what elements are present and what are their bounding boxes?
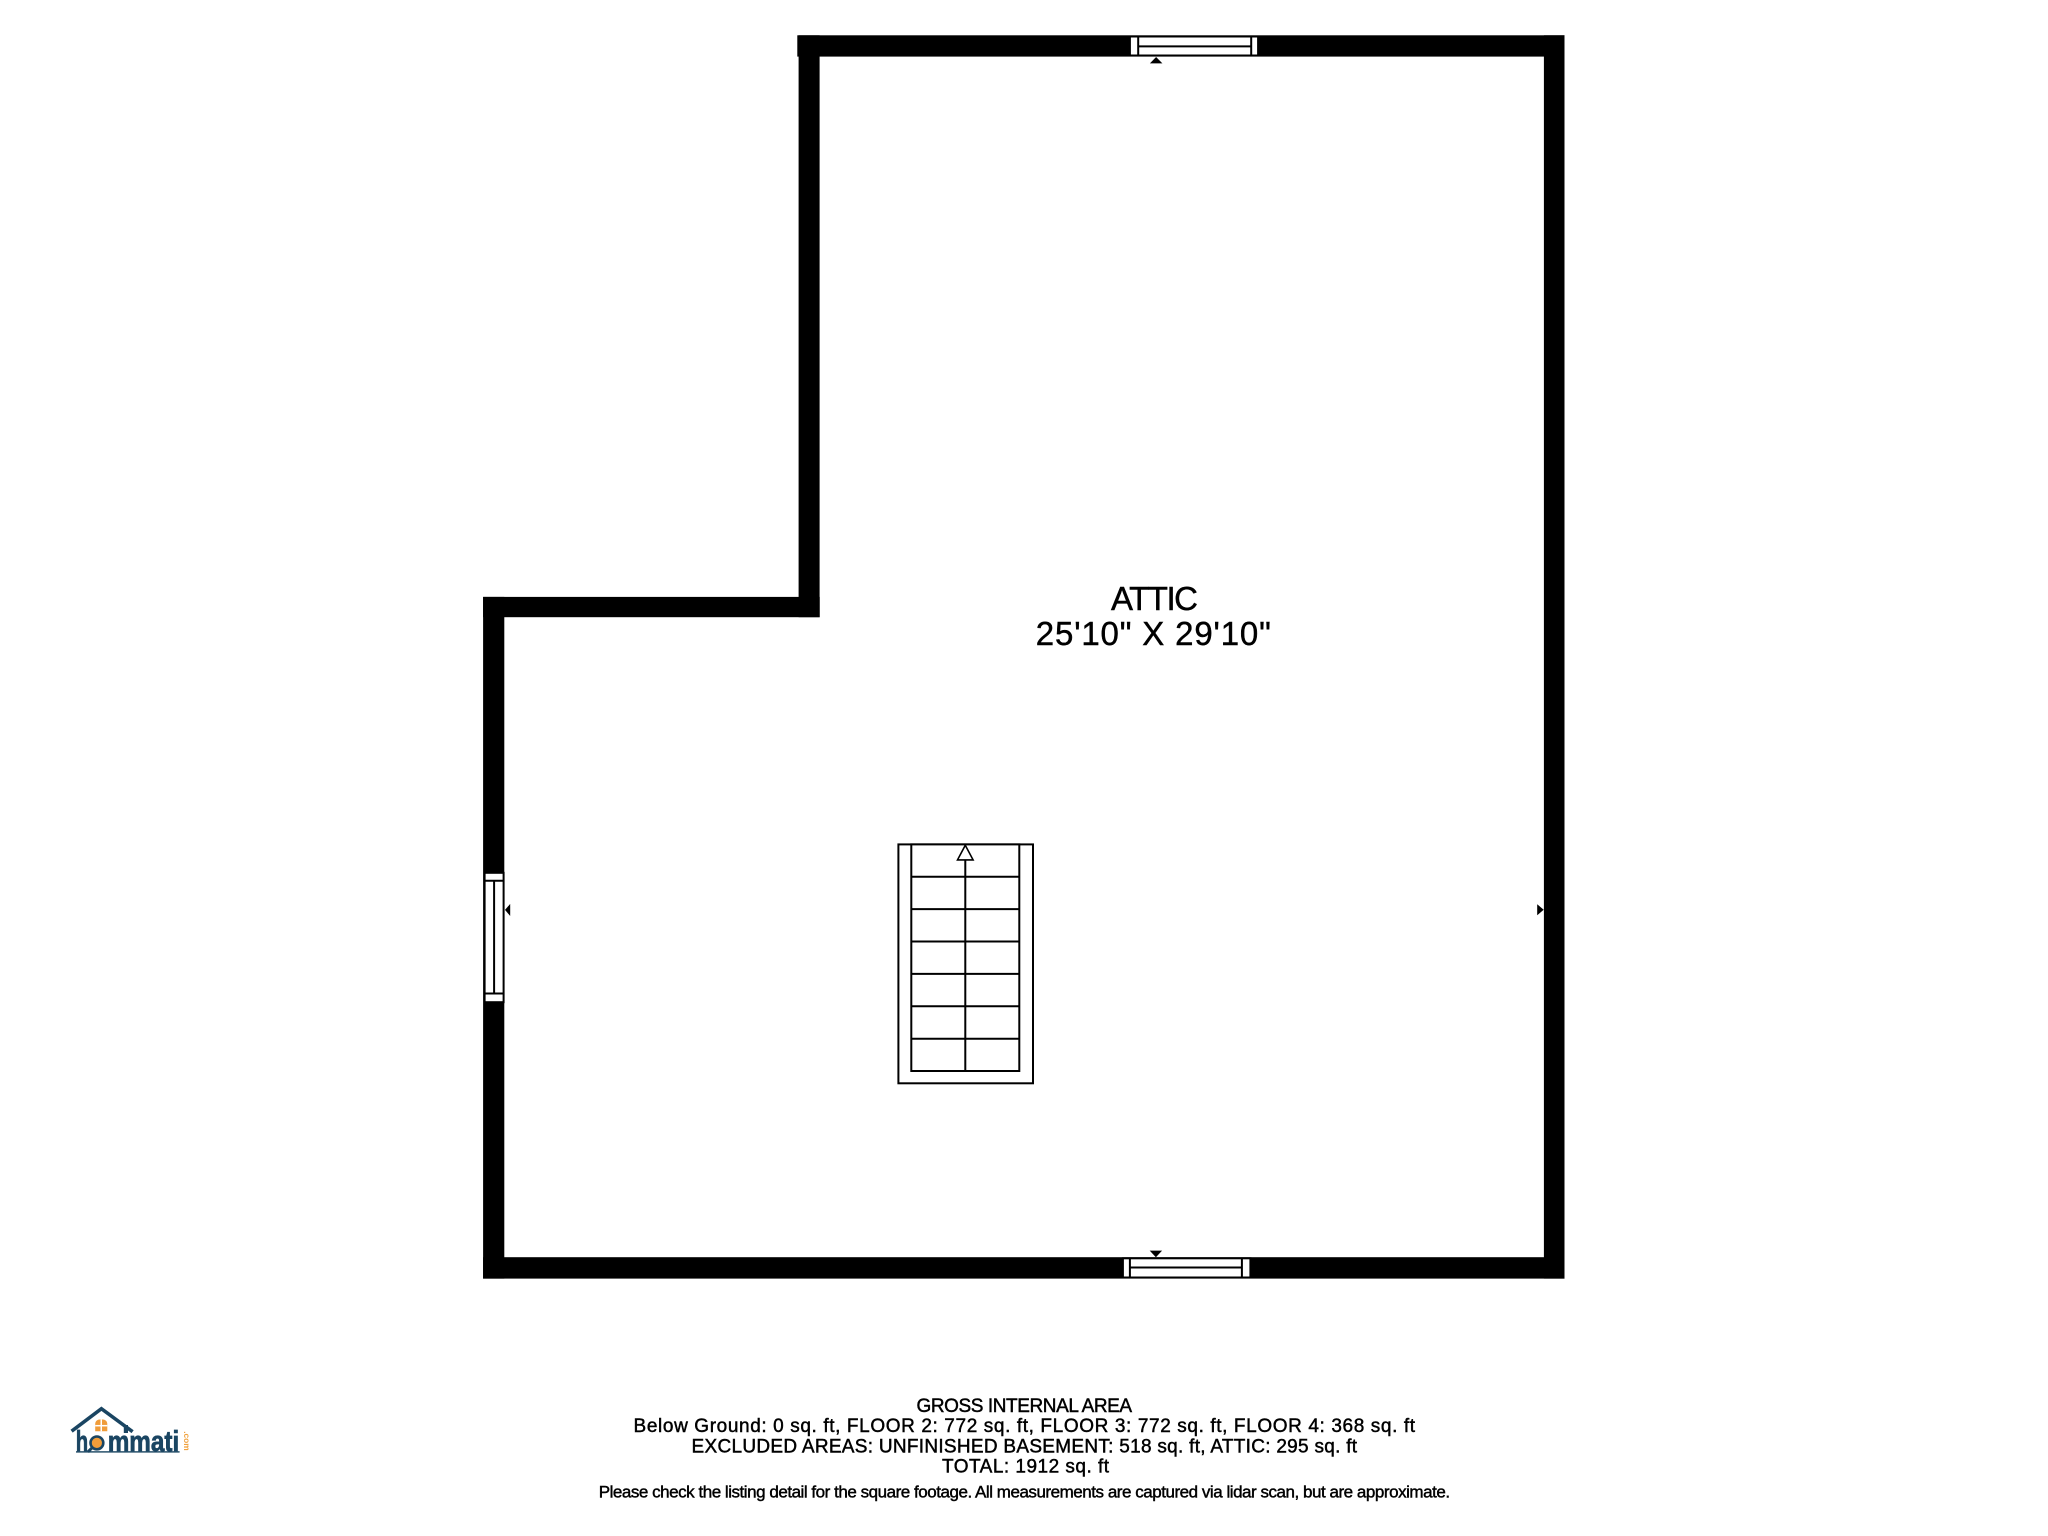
svg-text:EXCLUDED AREAS: UNFINISHED BAS: EXCLUDED AREAS: UNFINISHED BASEMENT: 518… — [692, 1436, 1358, 1457]
svg-text:.com: .com — [182, 1431, 192, 1451]
svg-text:mmati: mmati — [108, 1426, 180, 1458]
svg-text:h: h — [76, 1426, 88, 1458]
svg-text:GROSS INTERNAL AREA: GROSS INTERNAL AREA — [917, 1396, 1133, 1417]
svg-text:25'10" X 29'10": 25'10" X 29'10" — [1036, 615, 1271, 652]
svg-text:Please check the listing detai: Please check the listing detail for the … — [599, 1483, 1450, 1502]
svg-text:TOTAL: 1912 sq. ft: TOTAL: 1912 sq. ft — [942, 1456, 1110, 1477]
svg-text:ATTIC: ATTIC — [1111, 580, 1198, 617]
svg-text:Below Ground: 0 sq. ft, FLOOR: Below Ground: 0 sq. ft, FLOOR 2: 772 sq.… — [634, 1416, 1416, 1437]
